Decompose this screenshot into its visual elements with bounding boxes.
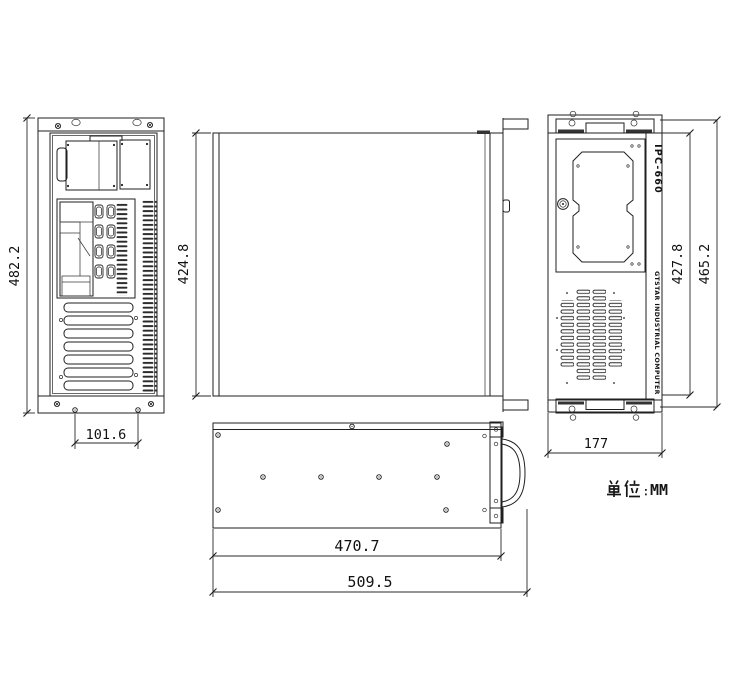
dim-label-465-2: 465.2 [697, 244, 713, 285]
dimension-front-depth: 177 [545, 413, 666, 458]
dsub-connector [95, 205, 103, 218]
dim-label-470-7: 470.7 [334, 537, 379, 555]
screw-icon [148, 401, 153, 406]
mounting-hole [319, 475, 324, 480]
io-panel [57, 199, 135, 298]
mounting-hole [445, 442, 450, 447]
dim-label-101-6: 101.6 [86, 427, 127, 443]
side-view [213, 422, 525, 528]
fan-grille [556, 289, 625, 384]
dim-label-177: 177 [584, 436, 608, 452]
dsub-connector [95, 225, 103, 238]
rack-ear [503, 119, 528, 129]
dimension-body-height: 424.8 [176, 130, 211, 400]
rear-view [38, 118, 164, 413]
dsub-connector [107, 225, 115, 238]
dsub-connector [107, 265, 115, 278]
top-view [213, 118, 528, 412]
brand-text: GTSTAR INDUSTRIAL COMPUTER [653, 271, 660, 395]
rack-ear [483, 422, 503, 523]
dsub-connector [107, 205, 115, 218]
mounting-hole [350, 424, 355, 429]
screw-icon [55, 123, 60, 128]
top-flange-handle [556, 111, 654, 133]
screw-icon [147, 122, 152, 127]
vent-strip [142, 200, 157, 394]
vent-strip [116, 203, 128, 296]
dim-label-509-5: 509.5 [347, 573, 392, 591]
rack-ear [503, 400, 528, 410]
dim-label-482-2: 482.2 [7, 246, 23, 287]
mounting-hole [444, 508, 449, 513]
dimension-rear-hole-spacing: 101.6 [72, 414, 142, 449]
latch [503, 200, 510, 212]
dim-label-427-8: 427.8 [670, 244, 686, 285]
unit-note: MM [607, 481, 668, 500]
psu-cutout [57, 136, 150, 190]
handle [502, 439, 525, 507]
mounting-slot [72, 119, 80, 125]
cjk-glyph-dan [607, 481, 621, 498]
dim-label-424-8: 424.8 [176, 244, 192, 285]
mounting-hole [377, 475, 382, 480]
expansion-slots [59, 303, 137, 390]
mounting-hole [435, 475, 440, 480]
colon-glyph [645, 489, 647, 495]
chassis-dimension-drawing: 482.2 424.8 101.6 [0, 0, 750, 689]
mounting-hole [261, 475, 266, 480]
screw-icon [54, 401, 59, 406]
handle [586, 400, 624, 410]
cjk-glyph-wei [625, 481, 640, 498]
mounting-slot [133, 119, 141, 125]
front-door [556, 139, 645, 272]
dsub-connector [95, 265, 103, 278]
model-text: IPC-660 [652, 144, 663, 194]
mounting-hole [216, 508, 221, 513]
technical-drawing-page: 单位：MM [0, 0, 750, 689]
dimension-front-inner-width: 427.8 [662, 130, 694, 399]
dsub-connector [107, 245, 115, 258]
mounting-hole [73, 408, 78, 413]
dimension-rear-overall-height: 482.2 [7, 115, 35, 417]
bottom-flange-handle [556, 399, 654, 420]
mounting-hole [136, 408, 141, 413]
unit-value-text: MM [650, 481, 668, 499]
dsub-connector [95, 245, 103, 258]
handle [586, 123, 624, 133]
front-view: IPC-660 GTSTAR INDUSTRIAL COMPUTER [548, 111, 663, 420]
mounting-hole [216, 433, 221, 438]
keylock-icon [558, 199, 569, 210]
